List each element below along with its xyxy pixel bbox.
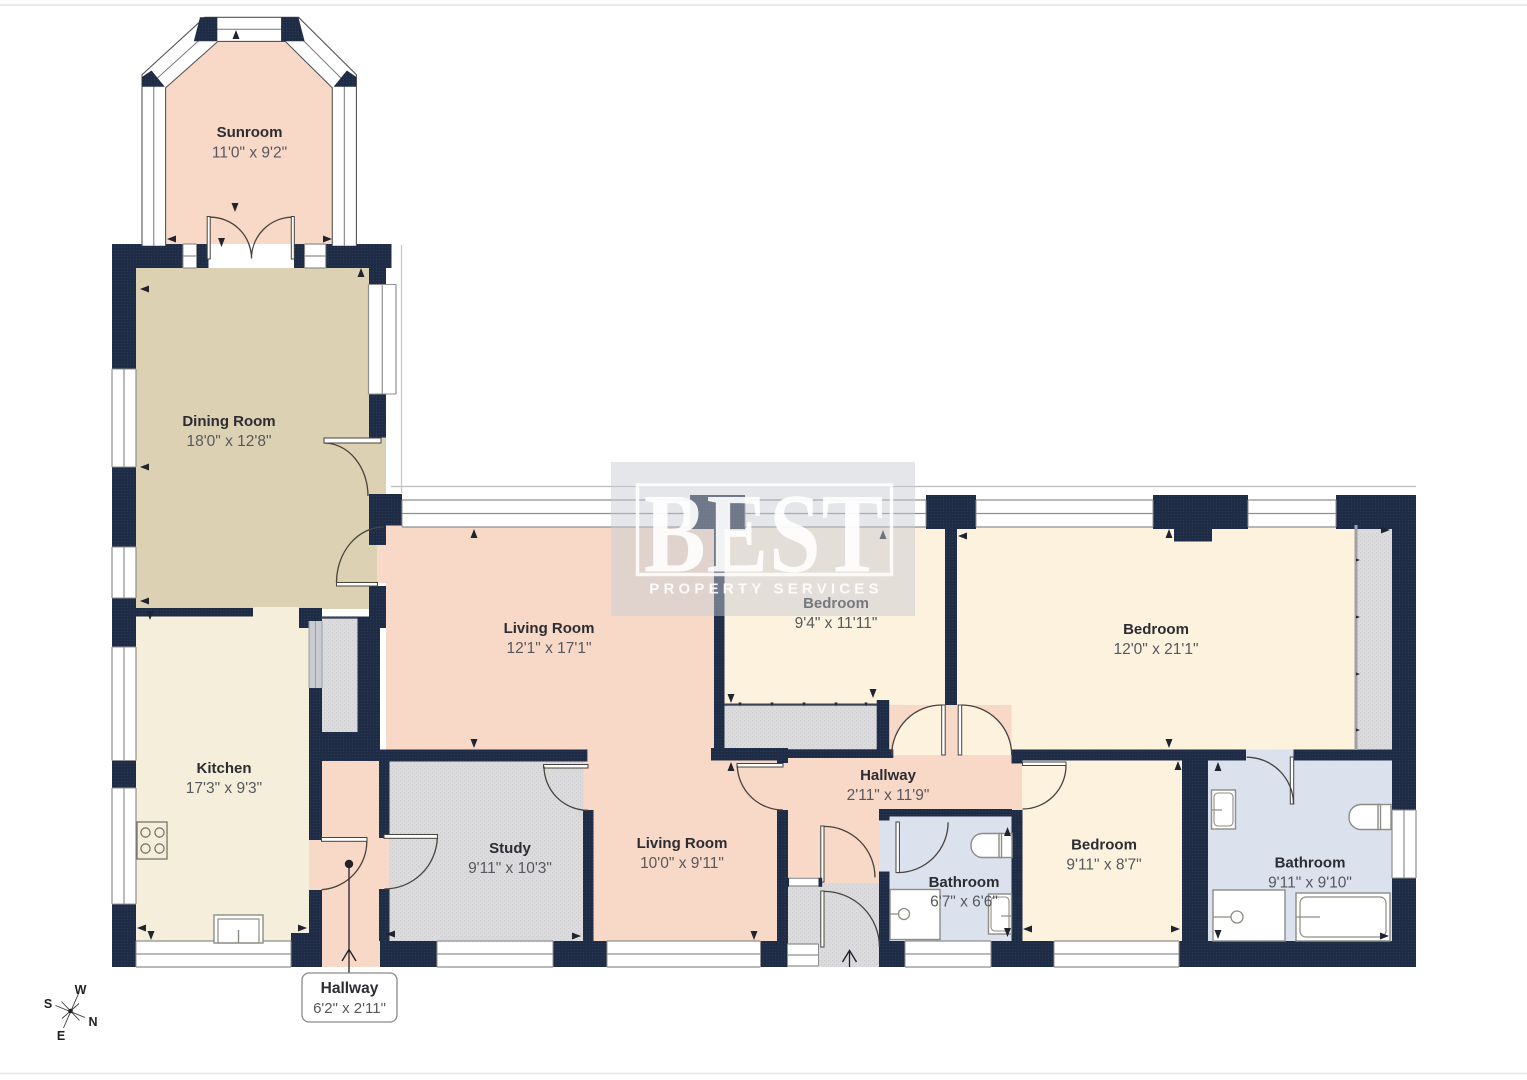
- svg-text:PROPERTY SERVICES: PROPERTY SERVICES: [649, 581, 882, 598]
- svg-text:Bedroom: Bedroom: [1071, 837, 1137, 854]
- svg-text:18'0" x 12'8": 18'0" x 12'8": [186, 433, 271, 450]
- svg-text:Bedroom: Bedroom: [1123, 621, 1189, 638]
- svg-text:Hallway: Hallway: [321, 980, 379, 997]
- svg-text:Hallway: Hallway: [860, 767, 917, 784]
- svg-text:9'4" x 11'11": 9'4" x 11'11": [795, 615, 878, 632]
- svg-text:11'0" x 9'2": 11'0" x 9'2": [212, 145, 287, 162]
- svg-text:Study: Study: [489, 840, 531, 857]
- svg-text:Bathroom: Bathroom: [929, 874, 1000, 891]
- svg-text:W: W: [75, 983, 87, 997]
- svg-text:9'11" x 8'7": 9'11" x 8'7": [1066, 857, 1141, 874]
- svg-text:Living Room: Living Room: [637, 835, 728, 852]
- svg-text:10'0" x 9'11": 10'0" x 9'11": [640, 855, 724, 872]
- svg-text:12'0" x 21'1": 12'0" x 21'1": [1113, 641, 1198, 658]
- svg-text:N: N: [88, 1015, 97, 1029]
- svg-text:9'11" x 10'3": 9'11" x 10'3": [468, 860, 552, 877]
- svg-text:2'11" x 11'9": 2'11" x 11'9": [847, 787, 930, 804]
- svg-text:6'2" x 2'11": 6'2" x 2'11": [313, 1000, 386, 1017]
- svg-text:Bathroom: Bathroom: [1275, 855, 1346, 872]
- svg-text:6'7" x 6'6": 6'7" x 6'6": [930, 894, 998, 911]
- svg-text:Sunroom: Sunroom: [217, 124, 283, 141]
- svg-text:Kitchen: Kitchen: [196, 760, 251, 777]
- svg-text:Living Room: Living Room: [504, 620, 595, 637]
- svg-text:BEST: BEST: [644, 472, 884, 597]
- svg-text:12'1" x 17'1": 12'1" x 17'1": [506, 640, 591, 657]
- svg-text:9'11" x 9'10": 9'11" x 9'10": [1268, 875, 1352, 892]
- svg-text:E: E: [57, 1029, 65, 1043]
- svg-text:Dining Room: Dining Room: [182, 413, 275, 430]
- svg-text:S: S: [44, 997, 52, 1011]
- svg-text:17'3" x 9'3": 17'3" x 9'3": [186, 780, 262, 797]
